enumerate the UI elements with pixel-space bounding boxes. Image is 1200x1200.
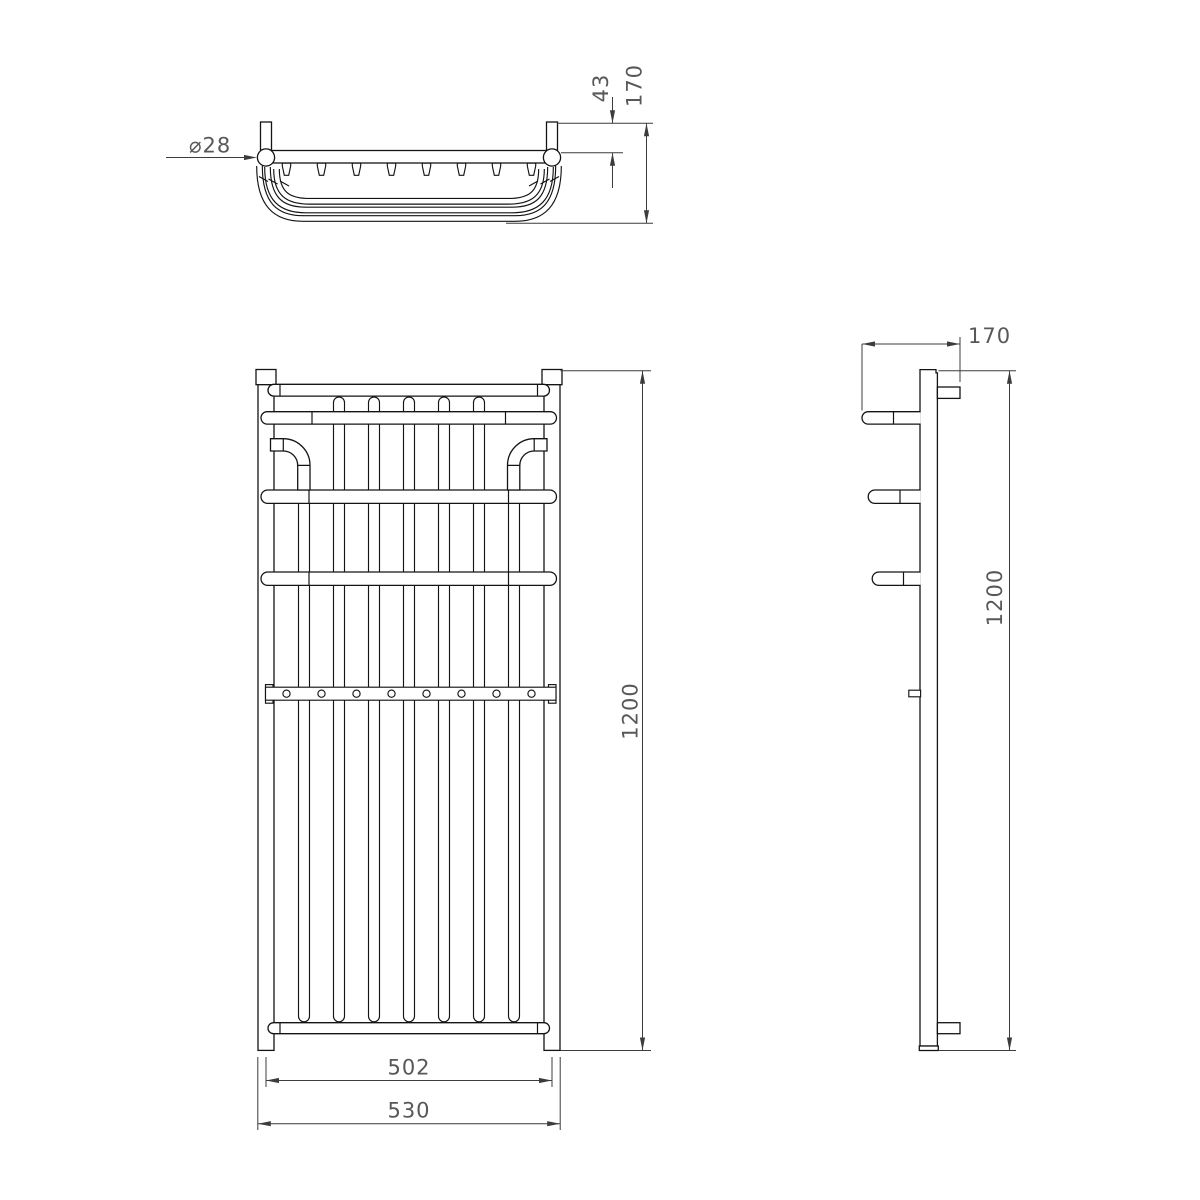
- dimension-diameter: ⌀28: [166, 134, 257, 161]
- wall-offset-label: 43: [589, 74, 613, 103]
- side-view: 170 1200: [862, 324, 1016, 1051]
- arrow-right-icon: [244, 155, 257, 160]
- front-height-label: 1200: [619, 682, 643, 739]
- wall-stub-bottom: [937, 1023, 960, 1034]
- arrow-down-icon: [644, 210, 649, 223]
- arrow-left-icon: [258, 1121, 271, 1126]
- front-view: 1200 502 530: [256, 370, 651, 1131]
- mounting-plate: [266, 685, 557, 704]
- rail-4: [261, 572, 557, 585]
- wall-stub-top: [937, 387, 960, 398]
- bottom-rail: [268, 1023, 550, 1034]
- top-rail: [268, 384, 550, 396]
- overall-width-label: 530: [387, 1099, 430, 1123]
- arrow-right-icon: [547, 1121, 560, 1126]
- top-view: ⌀28 43 170: [166, 64, 653, 223]
- rail-2: [261, 412, 557, 424]
- dimension-centres-width: 502: [266, 1056, 552, 1088]
- shelf-spindles: [282, 163, 535, 175]
- tube-left: [258, 385, 274, 1051]
- top-rail-plan: [266, 151, 552, 164]
- dimension-front-height: 1200: [561, 371, 652, 1051]
- arrow-left-icon: [862, 341, 875, 346]
- tube-side: [920, 370, 937, 1046]
- tube-cap-right: [542, 370, 562, 385]
- side-depth-label: 170: [968, 324, 1011, 348]
- diameter-label: ⌀28: [189, 134, 231, 158]
- arrow-down-icon: [610, 110, 615, 123]
- rail-3: [261, 490, 557, 503]
- arrow-down-icon: [640, 1038, 645, 1051]
- arrow-up-icon: [644, 123, 649, 136]
- tube-bottom-cap: [919, 1046, 938, 1051]
- arrow-up-icon: [1007, 371, 1012, 384]
- wall-bracket-right: [547, 122, 558, 150]
- plate-edge-side: [909, 690, 921, 697]
- wall-bracket-left: [261, 122, 272, 150]
- tube-end-left: [257, 149, 274, 166]
- tube-cap-left: [256, 370, 276, 385]
- arrow-down-icon: [1007, 1038, 1012, 1051]
- dimension-side-height: 1200: [938, 371, 1016, 1051]
- technical-drawing-page: ⌀28 43 170: [0, 0, 1200, 1200]
- side-height-label: 1200: [983, 569, 1007, 626]
- towel-radiator-drawing: ⌀28 43 170: [0, 0, 1200, 1200]
- side-rails: [862, 412, 921, 586]
- arrow-right-icon: [539, 1078, 552, 1083]
- arrow-up-icon: [610, 153, 615, 166]
- arrow-up-icon: [640, 371, 645, 384]
- shelf-rails: [259, 166, 559, 219]
- arrow-left-icon: [266, 1078, 279, 1083]
- weld-ticks: [259, 177, 559, 187]
- tube-right: [544, 385, 560, 1051]
- centres-width-label: 502: [387, 1056, 430, 1080]
- shelf-depth-label: 170: [623, 64, 647, 107]
- arrow-right-icon: [947, 341, 960, 346]
- tube-end-right: [543, 149, 560, 166]
